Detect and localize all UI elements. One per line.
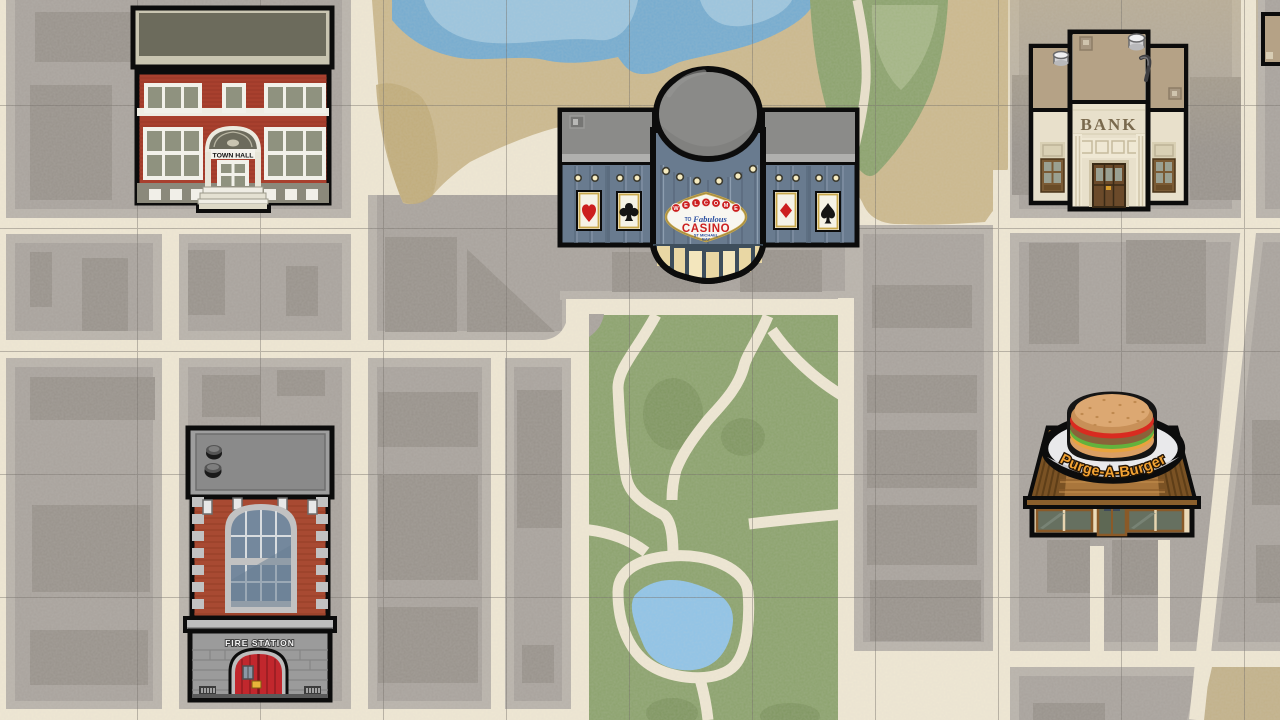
svg-text:FIRE STATION: FIRE STATION: [225, 638, 295, 648]
svg-text:C: C: [704, 200, 708, 206]
svg-text:BAY: BAY: [702, 237, 710, 242]
svg-text:BANK: BANK: [1080, 115, 1137, 134]
svg-text:TOWN HALL: TOWN HALL: [213, 152, 254, 159]
svg-text:O: O: [714, 201, 719, 207]
svg-text:E: E: [734, 206, 738, 212]
svg-text:M: M: [724, 203, 729, 209]
svg-text:W: W: [673, 206, 679, 212]
svg-text:E: E: [684, 203, 688, 209]
